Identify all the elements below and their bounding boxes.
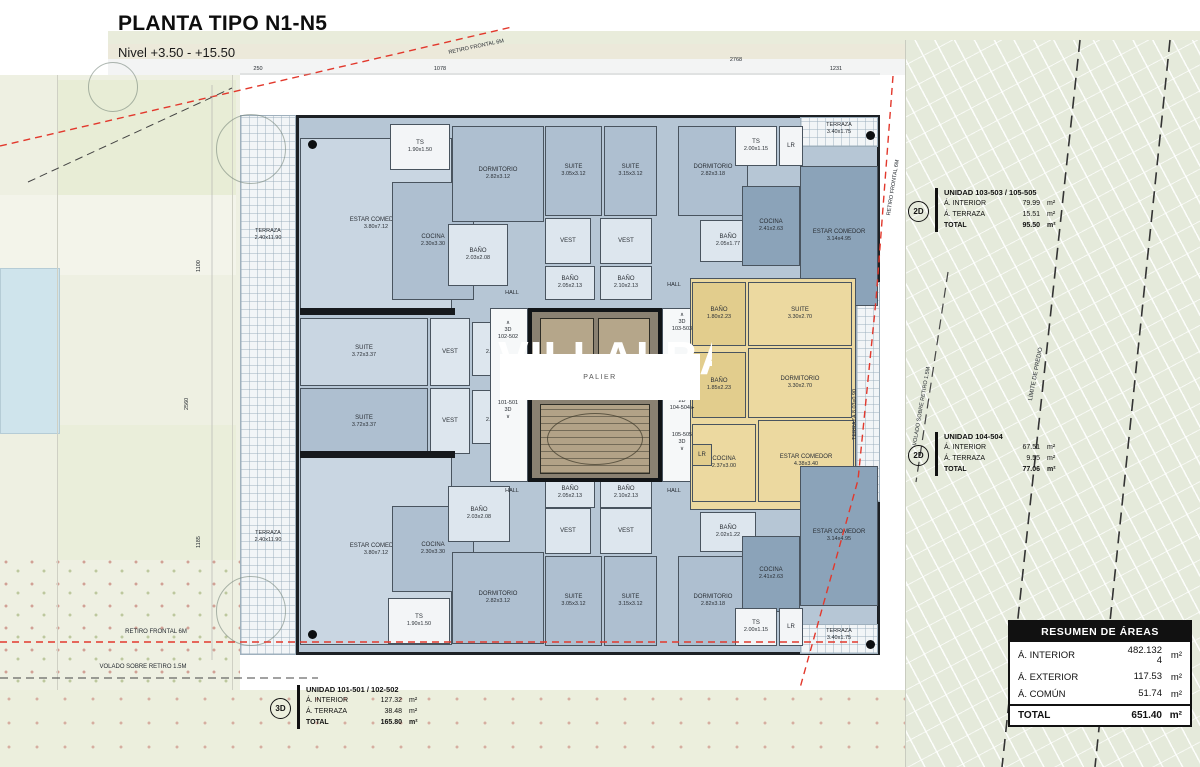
room-ba-o: BAÑO2.03x2.08 bbox=[448, 224, 508, 286]
room-suite: SUITE3.72x3.37 bbox=[300, 318, 428, 386]
property-line bbox=[57, 75, 58, 690]
room-label: TS bbox=[415, 614, 423, 621]
room-dimensions: 3.14x4.95 bbox=[827, 236, 851, 242]
plan-label: VOLADO SOBRE RETIRO 1.5M bbox=[58, 664, 228, 672]
table-row-total: TOTAL651.40m² bbox=[1010, 704, 1190, 725]
table-row: Á. TERRAZA38.48m² bbox=[306, 707, 434, 718]
lawn-patch bbox=[58, 425, 236, 560]
room-label: TS bbox=[752, 620, 760, 627]
room-dormitorio: DORMITORIO2.82x3.12 bbox=[452, 552, 544, 644]
room-label: BAÑO bbox=[710, 378, 727, 385]
column-dot bbox=[308, 630, 317, 639]
plan-label: TERRAZA 8.03x0.90 bbox=[852, 389, 859, 440]
plan-label: TERRAZA 2.40x11.90 bbox=[238, 228, 298, 242]
room-dimensions: 3.05x3.12 bbox=[561, 601, 585, 607]
table-row-total: TOTAL165.80m² bbox=[306, 718, 434, 729]
pool bbox=[0, 268, 60, 434]
plan-label: HALL bbox=[494, 488, 530, 495]
table-row: Á. COMÚN51.74m² bbox=[1010, 685, 1190, 702]
room-label: COCINA bbox=[712, 456, 735, 463]
room-label: VEST bbox=[560, 238, 576, 245]
table-row: Á. INTERIOR482.132 4m² bbox=[1010, 642, 1190, 668]
room-dimensions: 2.10x2.13 bbox=[614, 283, 638, 289]
room-label: SUITE bbox=[622, 164, 640, 171]
plan-label: RETIRO FRONTAL 6M bbox=[886, 159, 902, 216]
room-vest: VEST bbox=[600, 508, 652, 554]
room-label: COCINA bbox=[759, 219, 782, 226]
room-label: TS bbox=[752, 139, 760, 146]
tree-canopy bbox=[88, 62, 138, 112]
room-dimensions: 2.03x2.08 bbox=[467, 514, 491, 520]
room-vest: VEST bbox=[545, 218, 591, 264]
table-row: Á. EXTERIOR117.53m² bbox=[1010, 668, 1190, 685]
plan-label: HALL bbox=[656, 488, 692, 495]
room-label: VEST bbox=[560, 528, 576, 535]
room-label: BAÑO bbox=[719, 525, 736, 532]
room-label: VEST bbox=[618, 528, 634, 535]
room-vest: VEST bbox=[430, 318, 470, 386]
room-dimensions: 2.82x3.12 bbox=[486, 174, 510, 180]
room-dimensions: 2.00x1.15 bbox=[744, 627, 768, 633]
unit-table-104-504: 2D UNIDAD 104-504 Á. INTERIOR67.51m² Á. … bbox=[908, 432, 1072, 476]
room-label: SUITE bbox=[791, 307, 809, 314]
room-dimensions: 1.80x2.23 bbox=[707, 314, 731, 320]
plan-label: 1231 bbox=[820, 66, 852, 73]
unit-type-badge: 2D bbox=[908, 445, 929, 466]
room-label: SUITE bbox=[622, 594, 640, 601]
room-label: DORMITORIO bbox=[694, 164, 733, 171]
table-row-total: TOTAL77.06m² bbox=[944, 465, 1072, 476]
room-ts: TS2.00x1.15 bbox=[735, 608, 777, 646]
room-label: DORMITORIO bbox=[479, 167, 518, 174]
room-label: BAÑO bbox=[561, 486, 578, 493]
room-dimensions: 2.00x1.15 bbox=[744, 146, 768, 152]
room-dimensions: 3.72x3.37 bbox=[352, 352, 376, 358]
room-cocina: COCINA2.41x2.63 bbox=[742, 536, 800, 612]
room-dimensions: 1.90x1.50 bbox=[408, 147, 432, 153]
stairs bbox=[540, 404, 650, 474]
room-label: LR bbox=[787, 143, 795, 150]
room-label: SUITE bbox=[355, 345, 373, 352]
room-label: BAÑO bbox=[561, 276, 578, 283]
room-dimensions: 2.30x3.30 bbox=[421, 241, 445, 247]
room-label: BAÑO bbox=[719, 234, 736, 241]
room-dimensions: 1.90x1.50 bbox=[407, 621, 431, 627]
lawn-patch bbox=[58, 80, 236, 195]
plan-label: TERRAZA 3.40x1.75 bbox=[802, 122, 876, 136]
room-suite: SUITE3.30x2.70 bbox=[748, 282, 852, 346]
plan-label: 1100 bbox=[196, 260, 203, 272]
room-suite: SUITE3.05x3.12 bbox=[545, 126, 602, 216]
room-label: VEST bbox=[442, 418, 458, 425]
room-label: ESTAR COMEDOR bbox=[813, 229, 866, 236]
room-estar-comedor: ESTAR COMEDOR3.14x4.95 bbox=[800, 466, 878, 606]
room-label: COCINA bbox=[421, 542, 444, 549]
plan-label: 2D 104-504 ▸ bbox=[656, 398, 708, 412]
room-ts: TS1.90x1.50 bbox=[388, 598, 450, 644]
room-label: BAÑO bbox=[617, 276, 634, 283]
room-label: DORMITORIO bbox=[694, 594, 733, 601]
room-dimensions: 2.82x3.18 bbox=[701, 171, 725, 177]
unit-table-body: UNIDAD 104-504 Á. INTERIOR67.51m² Á. TER… bbox=[935, 432, 1072, 476]
room-dimensions: 2.41x2.63 bbox=[759, 574, 783, 580]
room-ba-o: BAÑO2.10x2.13 bbox=[600, 478, 652, 508]
plan-label: 1078 bbox=[424, 66, 456, 73]
watermark: VILLALBA bbox=[498, 330, 712, 386]
table-row: Á. TERRAZA9.55m² bbox=[944, 454, 1072, 465]
room-label: TS bbox=[416, 140, 424, 147]
room-ts: TS2.00x1.15 bbox=[735, 126, 777, 166]
room-vest: VEST bbox=[430, 388, 470, 454]
room-suite: SUITE3.05x3.12 bbox=[545, 556, 602, 646]
room-lr: LR bbox=[779, 126, 803, 166]
room-dimensions: 2.82x3.18 bbox=[701, 601, 725, 607]
room-dimensions: 3.30x2.70 bbox=[788, 383, 812, 389]
room-label: LR bbox=[787, 624, 795, 631]
wall-bar bbox=[300, 451, 455, 458]
room-label: DORMITORIO bbox=[479, 591, 518, 598]
column-dot bbox=[308, 140, 317, 149]
room-label: SUITE bbox=[355, 415, 373, 422]
plan-label: HALL bbox=[656, 282, 692, 289]
room-dimensions: 1.85x2.23 bbox=[707, 385, 731, 391]
terrace bbox=[240, 115, 296, 655]
room-label: COCINA bbox=[759, 567, 782, 574]
room-dimensions: 3.05x3.12 bbox=[561, 171, 585, 177]
unit-type-badge: 2D bbox=[908, 201, 929, 222]
plan-label: 101-501 3D ∨ bbox=[486, 400, 530, 421]
table-row: Á. INTERIOR67.51m² bbox=[944, 443, 1072, 454]
room-label: VEST bbox=[618, 238, 634, 245]
room-dimensions: 3.80x7.12 bbox=[364, 550, 388, 556]
plan-label: 105-505 3D ∨ bbox=[660, 432, 704, 453]
room-label: COCINA bbox=[421, 234, 444, 241]
unit-type-badge: 3D bbox=[270, 698, 291, 719]
room-label: BAÑO bbox=[469, 248, 486, 255]
plan-label: 1185 bbox=[196, 536, 203, 548]
background-band bbox=[108, 59, 905, 75]
stair-curve bbox=[547, 413, 643, 465]
room-vest: VEST bbox=[545, 508, 591, 554]
room-label: BAÑO bbox=[710, 307, 727, 314]
plan-label: TERRAZA 2.40x11.90 bbox=[238, 530, 298, 544]
room-suite: SUITE3.15x3.12 bbox=[604, 556, 657, 646]
room-dimensions: 3.72x3.37 bbox=[352, 422, 376, 428]
tree-canopy bbox=[216, 114, 286, 184]
table-row-total: TOTAL95.50m² bbox=[944, 221, 1072, 232]
resumen-table: RESUMEN DE ÁREAS Á. INTERIOR482.132 4m² … bbox=[1008, 620, 1192, 727]
room-dimensions: 3.15x3.12 bbox=[618, 171, 642, 177]
unit-table-body: UNIDAD 101-501 / 102-502 Á. INTERIOR127.… bbox=[297, 685, 434, 729]
plan-label: RETIRO FRONTAL 6M bbox=[96, 629, 216, 637]
room-label: VEST bbox=[442, 349, 458, 356]
table-row: Á. INTERIOR79.99m² bbox=[944, 199, 1072, 210]
room-suite: SUITE3.15x3.12 bbox=[604, 126, 657, 216]
room-dimensions: 2.41x2.63 bbox=[759, 226, 783, 232]
room-ba-o: BAÑO2.05x2.13 bbox=[545, 266, 595, 300]
room-label: DORMITORIO bbox=[781, 376, 820, 383]
room-dormitorio: DORMITORIO3.30x2.70 bbox=[748, 348, 852, 418]
tree-canopy bbox=[216, 576, 286, 646]
room-dimensions: 2.05x1.77 bbox=[716, 241, 740, 247]
room-ts: TS1.90x1.50 bbox=[390, 124, 450, 170]
room-dimensions: 3.80x7.12 bbox=[364, 224, 388, 230]
plan-label: 2768 bbox=[720, 57, 752, 64]
room-dimensions: 2.02x1.22 bbox=[716, 532, 740, 538]
plan-label: HALL bbox=[494, 290, 530, 297]
page-subtitle: Nivel +3.50 - +15.50 bbox=[118, 45, 235, 60]
room-dormitorio: DORMITORIO2.82x3.12 bbox=[452, 126, 544, 222]
unit-table-101-501: 3D UNIDAD 101-501 / 102-502 Á. INTERIOR1… bbox=[270, 685, 434, 729]
plan-label: TERRAZA 3.40x1.75 bbox=[802, 628, 876, 642]
room-suite: SUITE3.72x3.37 bbox=[300, 388, 428, 456]
floor-plan-sheet: PLANTA TIPO N1-N5 Nivel +3.50 - +15.50 E… bbox=[0, 0, 1200, 767]
room-lr: LR bbox=[779, 608, 803, 646]
unit-table-title: UNIDAD 101-501 / 102-502 bbox=[306, 685, 434, 694]
room-dimensions: 2.03x2.08 bbox=[466, 255, 490, 261]
room-dimensions: 3.30x2.70 bbox=[788, 314, 812, 320]
room-label: ESTAR COMEDOR bbox=[780, 454, 833, 461]
plan-label: 250 bbox=[244, 66, 272, 73]
room-dimensions: 2.05x2.13 bbox=[558, 493, 582, 499]
room-dimensions: 2.37x3.00 bbox=[712, 463, 736, 469]
room-label: ESTAR COMEDOR bbox=[813, 529, 866, 536]
room-label: SUITE bbox=[565, 164, 583, 171]
unit-table-title: UNIDAD 104-504 bbox=[944, 432, 1072, 441]
landscape-bottom bbox=[0, 690, 905, 767]
plan-label: 2560 bbox=[184, 398, 191, 410]
page-title: PLANTA TIPO N1-N5 bbox=[118, 12, 327, 36]
room-cocina: COCINA2.41x2.63 bbox=[742, 186, 800, 266]
room-dimensions: 3.15x3.12 bbox=[618, 601, 642, 607]
unit-table-title: UNIDAD 103-503 / 105-505 bbox=[944, 188, 1072, 197]
room-dimensions: 2.05x2.13 bbox=[558, 283, 582, 289]
wall-bar bbox=[300, 308, 455, 315]
room-ba-o: BAÑO2.10x2.13 bbox=[600, 266, 652, 300]
room-label: BAÑO bbox=[617, 486, 634, 493]
resumen-title: RESUMEN DE ÁREAS bbox=[1010, 622, 1190, 642]
unit-table-103-503: 2D UNIDAD 103-503 / 105-505 Á. INTERIOR7… bbox=[908, 188, 1072, 232]
room-dimensions: 3.14x4.95 bbox=[827, 536, 851, 542]
room-label: BAÑO bbox=[470, 507, 487, 514]
room-dimensions: 2.30x3.30 bbox=[421, 549, 445, 555]
room-ba-o: BAÑO2.05x2.13 bbox=[545, 478, 595, 508]
landscape-left bbox=[0, 75, 240, 690]
room-dimensions: 2.10x2.13 bbox=[614, 493, 638, 499]
table-row: Á. INTERIOR127.32m² bbox=[306, 696, 434, 707]
room-vest: VEST bbox=[600, 218, 652, 264]
room-label: SUITE bbox=[565, 594, 583, 601]
room-dimensions: 2.82x3.12 bbox=[486, 598, 510, 604]
table-row: Á. TERRAZA15.51m² bbox=[944, 210, 1072, 221]
unit-table-body: UNIDAD 103-503 / 105-505 Á. INTERIOR79.9… bbox=[935, 188, 1072, 232]
